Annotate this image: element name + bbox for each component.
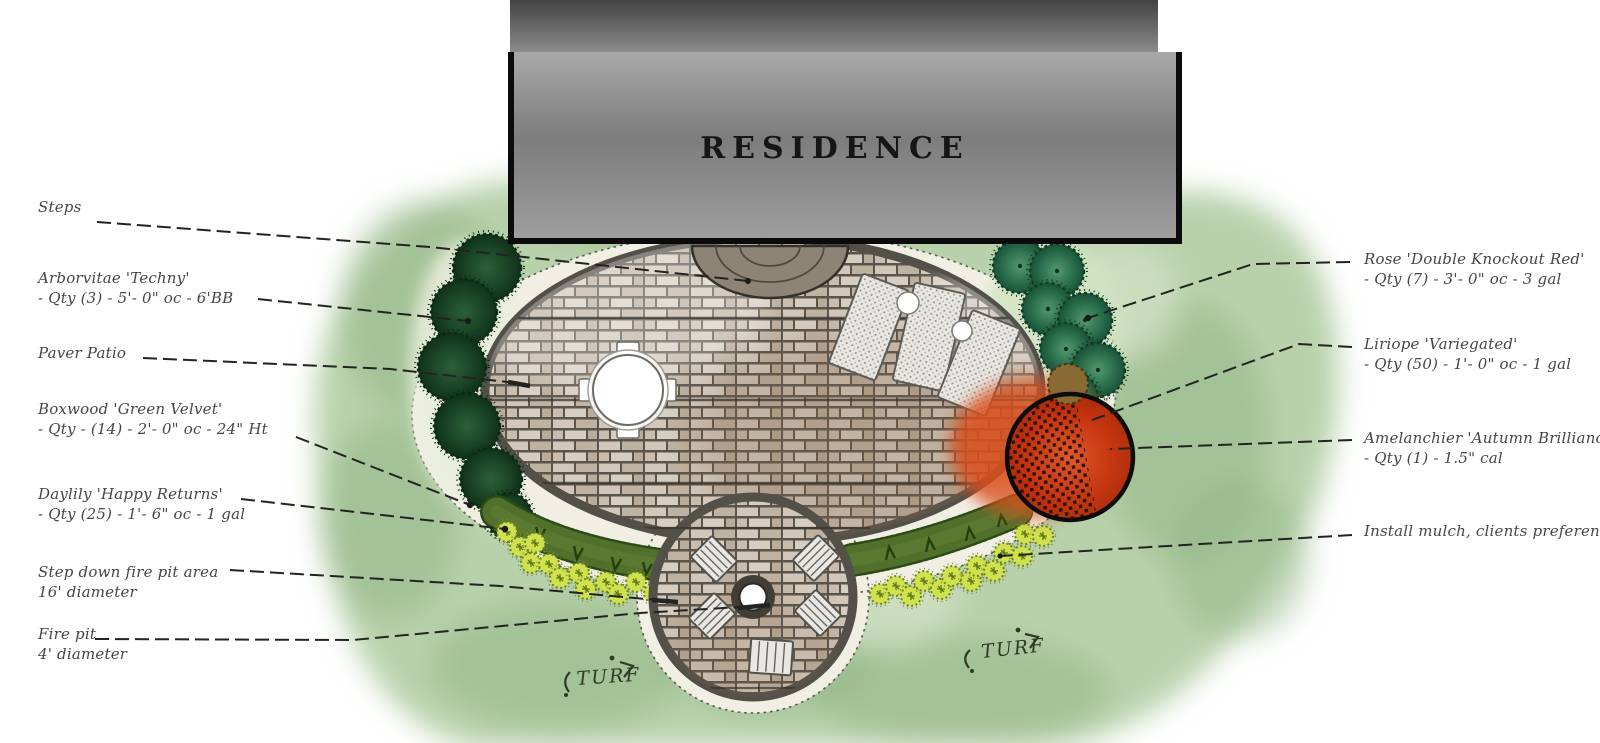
label-arborvitae: Arborvitae 'Techny' - Qty (3) - 5'- 0" o… (38, 268, 233, 308)
label-line2: - Qty (25) - 1'- 6" oc - 1 gal (38, 504, 245, 524)
landscape-plan: RESIDENCE TURF TURF Steps Arborvitae 'Te… (0, 0, 1600, 743)
label-line2: - Qty (1) - 1.5" cal (1364, 448, 1600, 468)
label-line2: 16' diameter (38, 582, 218, 602)
label-line1: Paver Patio (38, 343, 126, 363)
plan-canvas: RESIDENCE TURF TURF (0, 0, 1600, 743)
residence: RESIDENCE (508, 0, 1182, 244)
label-line2: - Qty - (14) - 2'- 0" oc - 24" Ht (38, 419, 268, 439)
label-step-down-fire-pit: Step down fire pit area 16' diameter (38, 562, 218, 602)
label-line2: - Qty (3) - 5'- 0" oc - 6'BB (38, 288, 233, 308)
label-rose: Rose 'Double Knockout Red' - Qty (7) - 3… (1364, 249, 1585, 289)
label-line2: 4' diameter (38, 644, 127, 664)
label-line1: Arborvitae 'Techny' (38, 268, 233, 288)
label-line2: - Qty (7) - 3'- 0" oc - 3 gal (1364, 269, 1585, 289)
label-boxwood: Boxwood 'Green Velvet' - Qty - (14) - 2'… (38, 399, 268, 439)
label-amelanchier: Amelanchier 'Autumn Brilliance' - Qty (1… (1364, 428, 1600, 468)
label-line1: Fire pit (38, 624, 127, 644)
label-line1: Install mulch, clients preference (1364, 521, 1600, 541)
label-line1: Daylily 'Happy Returns' (38, 484, 245, 504)
side-table (897, 292, 919, 314)
side-table (952, 321, 972, 341)
label-mulch: Install mulch, clients preference (1364, 521, 1600, 541)
label-line1: Steps (38, 197, 81, 217)
label-daylily: Daylily 'Happy Returns' - Qty (25) - 1'-… (38, 484, 245, 524)
label-paver-patio: Paver Patio (38, 343, 126, 363)
label-steps: Steps (38, 197, 81, 217)
label-line1: Step down fire pit area (38, 562, 218, 582)
label-line1: Amelanchier 'Autumn Brilliance' (1364, 428, 1600, 448)
label-line1: Liriope 'Variegated' (1364, 334, 1571, 354)
label-line1: Rose 'Double Knockout Red' (1364, 249, 1585, 269)
label-line1: Boxwood 'Green Velvet' (38, 399, 268, 419)
label-liriope: Liriope 'Variegated' - Qty (50) - 1'- 0"… (1364, 334, 1571, 374)
label-fire-pit: Fire pit 4' diameter (38, 624, 127, 664)
residence-label: RESIDENCE (700, 131, 970, 166)
label-line2: - Qty (50) - 1'- 0" oc - 1 gal (1364, 354, 1571, 374)
